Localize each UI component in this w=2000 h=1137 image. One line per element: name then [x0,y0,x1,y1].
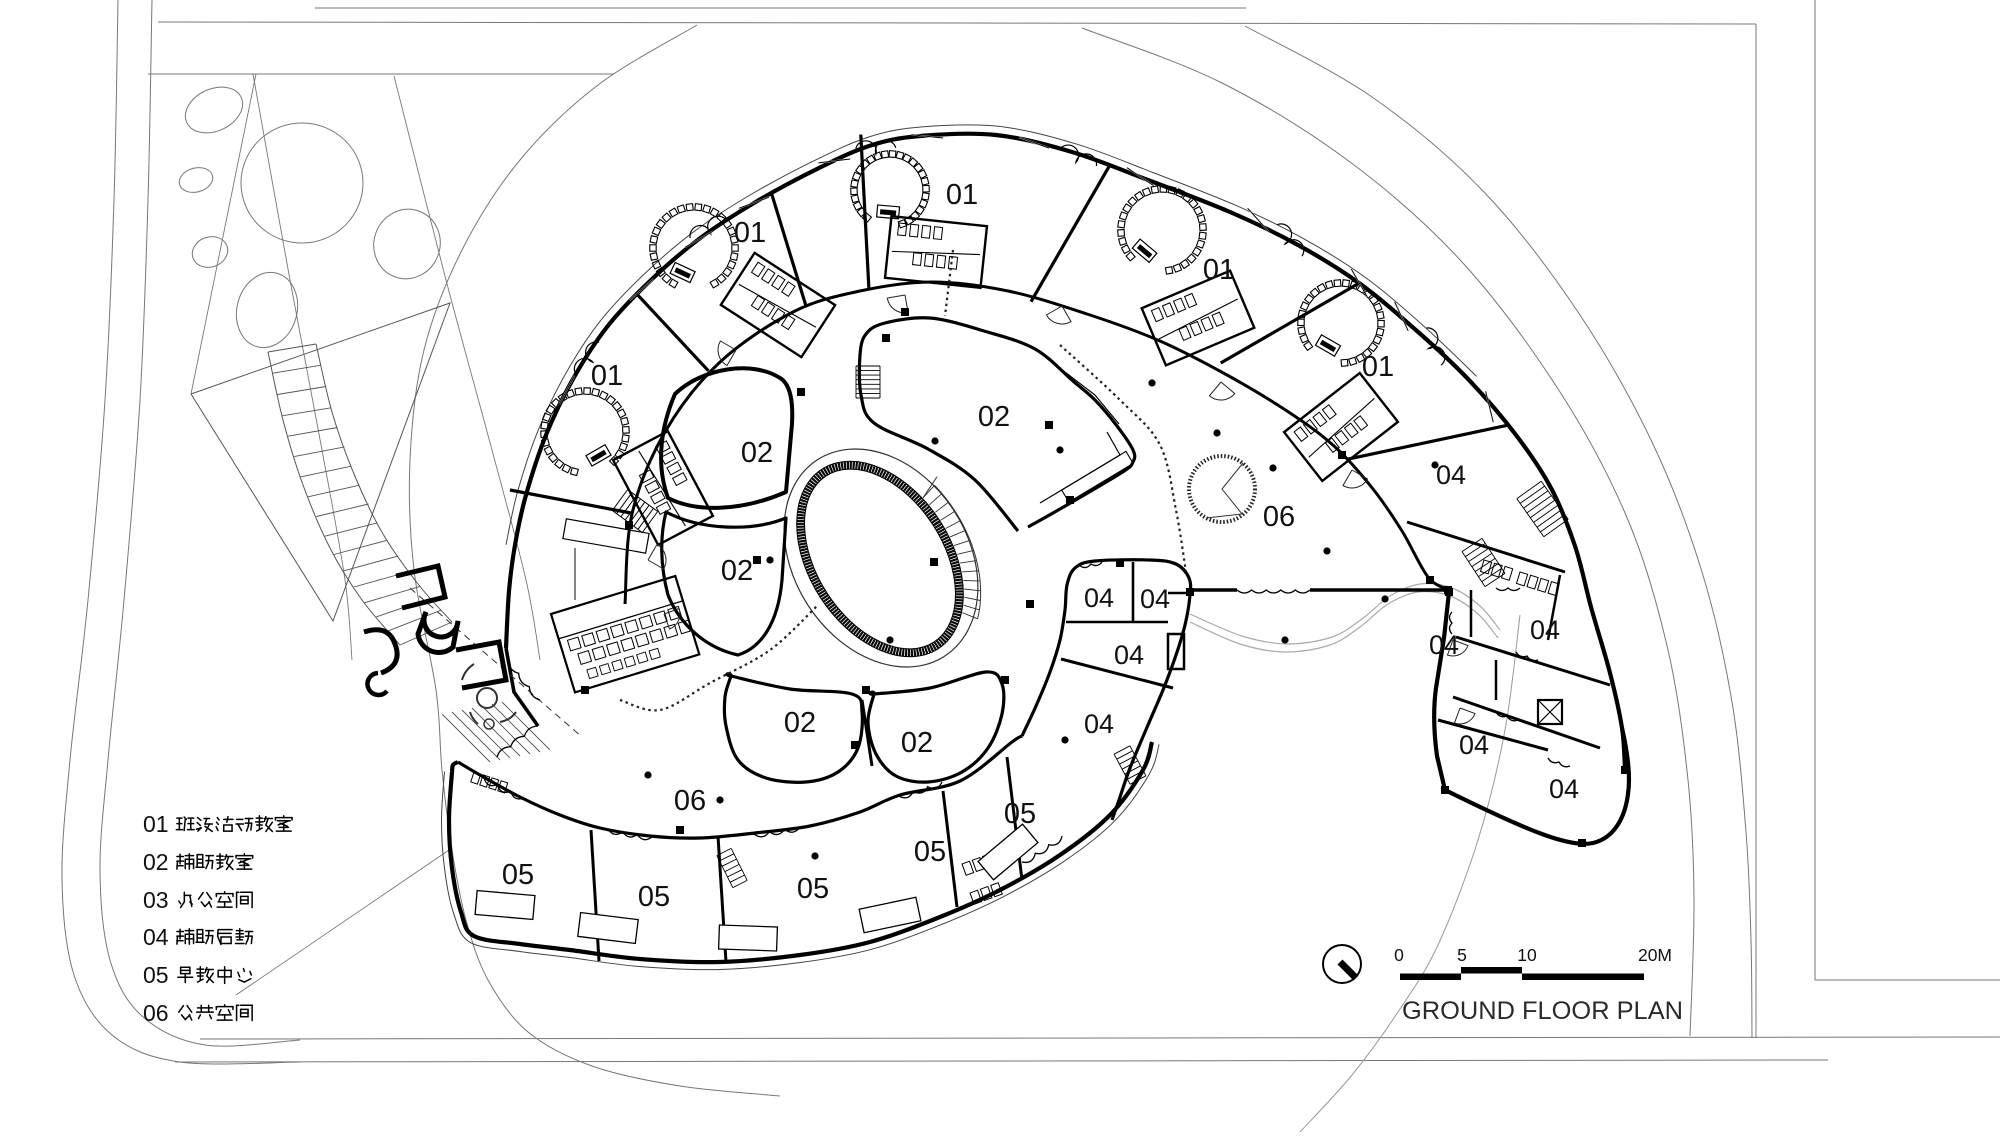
svg-text:05: 05 [638,881,670,913]
svg-text:02: 02 [741,437,773,469]
svg-text:06: 06 [143,1000,169,1026]
svg-text:04: 04 [1114,640,1144,670]
svg-text:04: 04 [143,924,169,950]
svg-text:02: 02 [143,849,169,875]
svg-text:05: 05 [1004,798,1036,830]
svg-text:04: 04 [1429,630,1459,660]
svg-text:01: 01 [143,811,169,837]
svg-text:04: 04 [1530,615,1560,645]
svg-text:04: 04 [1436,460,1466,490]
svg-text:05: 05 [143,962,169,988]
svg-text:GROUND FLOOR PLAN: GROUND FLOOR PLAN [1402,997,1683,1025]
svg-text:05: 05 [914,836,946,868]
svg-text:04: 04 [1459,730,1489,760]
svg-text:06: 06 [674,785,706,817]
svg-text:01: 01 [591,360,623,392]
svg-text:04: 04 [1084,583,1114,613]
svg-text:03: 03 [143,887,169,913]
svg-text:05: 05 [797,873,829,905]
svg-text:10: 10 [1517,945,1537,965]
svg-text:01: 01 [1203,254,1235,286]
svg-text:04: 04 [1084,709,1114,739]
svg-text:5: 5 [1457,945,1467,965]
svg-text:0: 0 [1394,945,1404,965]
svg-text:01: 01 [946,179,978,211]
svg-text:20M: 20M [1638,945,1672,965]
svg-text:05: 05 [502,859,534,891]
svg-text:02: 02 [784,707,816,739]
svg-text:04: 04 [1549,774,1579,804]
svg-text:02: 02 [978,401,1010,433]
svg-text:06: 06 [1263,501,1295,533]
svg-text:01: 01 [734,217,766,249]
svg-text:01: 01 [1362,351,1394,383]
svg-text:04: 04 [1140,584,1170,614]
svg-text:02: 02 [721,555,753,587]
svg-text:02: 02 [901,727,933,759]
